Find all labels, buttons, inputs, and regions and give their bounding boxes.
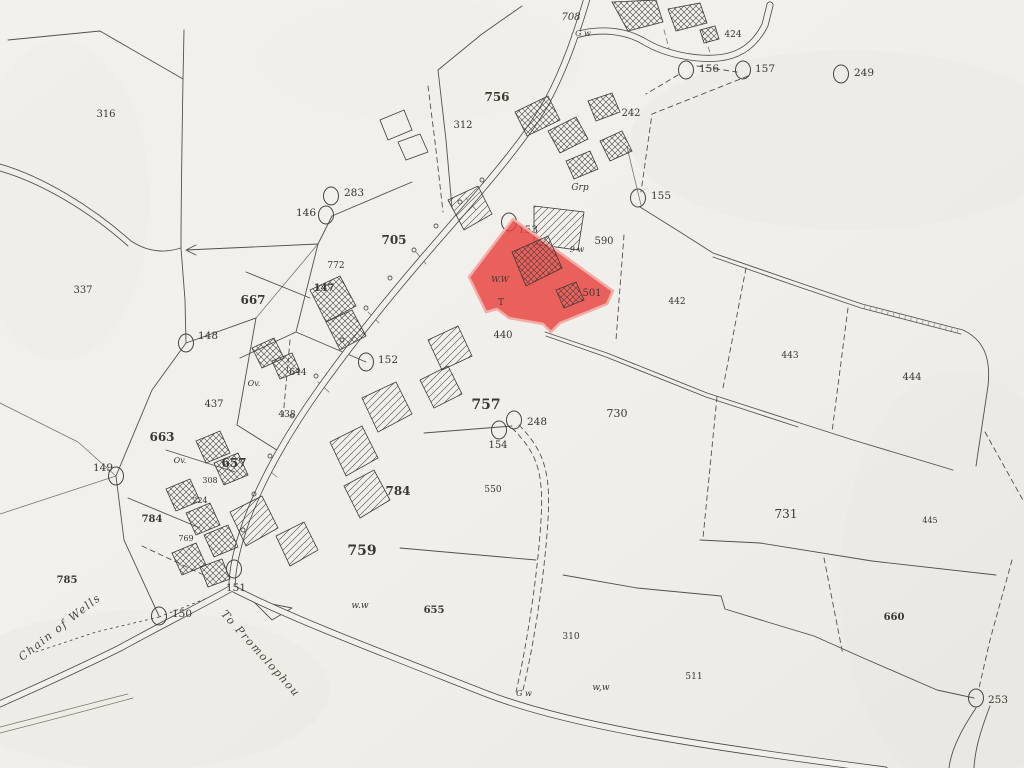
parcel-label: 759	[347, 543, 376, 559]
parcel-label: 444	[902, 372, 921, 383]
parcel-label: 785	[57, 575, 78, 586]
parcel-label: W.W	[491, 275, 509, 284]
parcel-label: 705	[381, 233, 406, 247]
parcel-label: 308	[202, 476, 217, 485]
parcel-label: 445	[922, 516, 937, 525]
boundary-marker-number: 157	[755, 63, 775, 75]
parcel-label: Grp	[571, 183, 588, 193]
parcel-label: T	[498, 298, 504, 308]
parcel-label: 438	[278, 410, 295, 420]
boundary-marker-number: 155	[651, 190, 671, 202]
boundary-marker-number: 146	[296, 207, 316, 219]
parcel-label: 9 w	[570, 245, 585, 254]
parcel-label: 224	[192, 496, 207, 505]
parcel-label: 437	[204, 399, 223, 410]
boundary-marker-number: 148	[198, 330, 218, 342]
boundary-marker-number: 149	[93, 462, 113, 474]
parcel-label: 769	[178, 534, 193, 543]
parcel-label: 440	[493, 330, 512, 341]
boundary-marker-number: 249	[854, 67, 874, 79]
parcel-label: 316	[96, 109, 115, 120]
parcel-label: 550	[484, 485, 501, 495]
historic-map-page: 2831461481491501511521531551561572482492…	[0, 0, 1024, 768]
parcel-label: Ov.	[174, 456, 187, 465]
parcel-label: 660	[884, 612, 905, 623]
parcel-label: 644	[289, 368, 306, 378]
parcel-label: 655	[424, 605, 445, 616]
parcel-label: 312	[453, 120, 472, 131]
parcel-label: 708	[561, 12, 580, 23]
parcel-label: Ov.	[248, 379, 261, 388]
parcel-label: 337	[73, 285, 92, 296]
parcel-label: 310	[562, 632, 579, 642]
boundary-marker-number: 253	[988, 694, 1008, 706]
parcel-label: 443	[781, 351, 798, 361]
boundary-marker-number: 283	[344, 187, 364, 199]
boundary-marker-number: 156	[699, 63, 719, 75]
parcel-label: 756	[484, 90, 509, 104]
parcel-label: 784	[385, 484, 410, 498]
parcel-label: 147	[314, 283, 335, 294]
parcel-label: 772	[327, 261, 344, 271]
parcel-label: 154	[488, 440, 507, 451]
boundary-marker-number: 152	[378, 354, 398, 366]
parcel-label: 667	[240, 293, 265, 307]
parcel-label: 757	[471, 397, 500, 413]
boundary-marker-number: 151	[226, 582, 246, 594]
parcel-label: w.w	[351, 601, 368, 611]
parcel-label: 424	[724, 30, 741, 40]
parcel-label: 784	[142, 514, 163, 525]
parcel-label: 731	[775, 507, 798, 521]
parcel-label: G w	[575, 29, 591, 38]
historic-map-svg: 2831461481491501511521531551561572482492…	[0, 0, 1024, 768]
parcel-label: 442	[668, 297, 685, 307]
parcel-label: 730	[607, 407, 628, 420]
parcel-label: 511	[685, 672, 702, 682]
parcel-label: 657	[221, 456, 246, 470]
parcel-label: 590	[594, 236, 613, 247]
parcel-label: G w	[516, 689, 532, 698]
parcel-label: 663	[149, 430, 174, 444]
parcel-label: 242	[621, 108, 640, 119]
boundary-marker-number: 248	[527, 416, 547, 428]
parcel-label: w,w	[592, 683, 609, 693]
parcel-label: 501	[582, 288, 601, 299]
boundary-marker-number: 150	[172, 608, 192, 620]
